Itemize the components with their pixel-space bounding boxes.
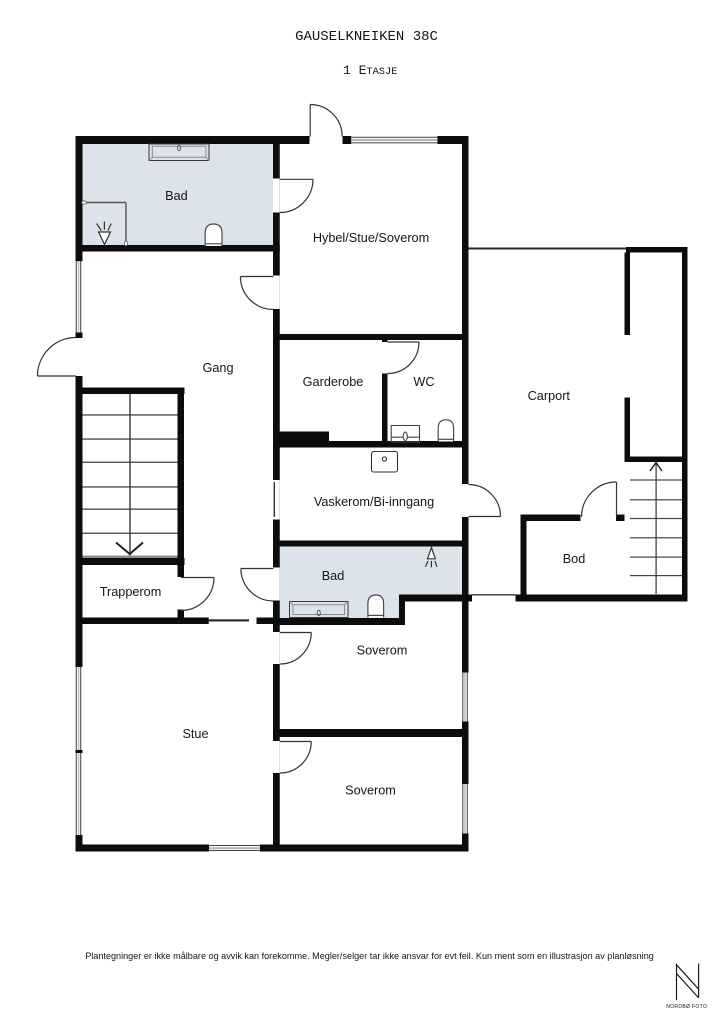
svg-text:Bod: Bod [563,552,586,566]
svg-text:Trapperom: Trapperom [100,585,162,599]
svg-text:Soverom: Soverom [345,784,396,798]
svg-text:Bad: Bad [322,569,345,583]
svg-text:Bad: Bad [165,189,188,203]
svg-text:Garderobe: Garderobe [303,375,364,389]
svg-text:WC: WC [413,375,434,389]
svg-text:1 ETASJE: 1 ETASJE [343,63,397,78]
svg-text:Hybel/Stue/Soverom: Hybel/Stue/Soverom [313,231,429,245]
svg-text:Plantegninger er ikke målbare: Plantegninger er ikke målbare og avvik k… [85,951,654,961]
svg-text:Gang: Gang [202,361,233,375]
svg-text:GAUSELKNEIKEN 38C: GAUSELKNEIKEN 38C [295,29,438,45]
svg-text:Stue: Stue [182,727,208,741]
svg-text:Vaskerom/Bi-inngang: Vaskerom/Bi-inngang [314,495,434,509]
svg-text:Carport: Carport [528,389,571,403]
svg-text:NORDBØ FOTO: NORDBØ FOTO [666,1004,707,1010]
svg-text:Soverom: Soverom [357,644,408,658]
